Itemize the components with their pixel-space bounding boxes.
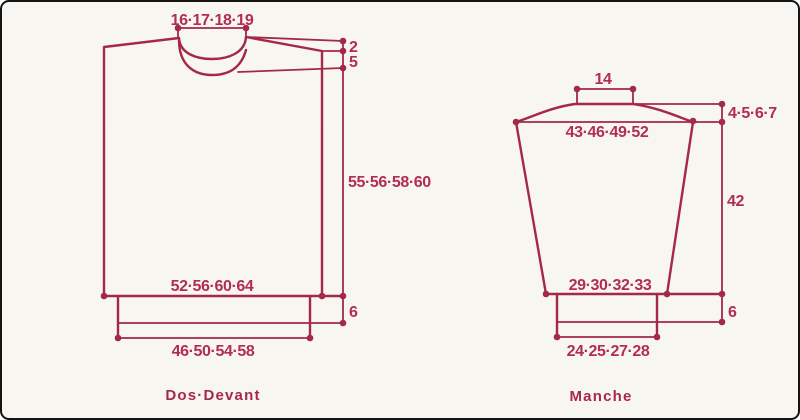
- body-width-label: 52·56·60·64: [171, 278, 254, 295]
- rib-width-label: 46·50·54·58: [172, 343, 255, 360]
- front-neck-depth-label: 5: [349, 54, 358, 71]
- sleeve-cap-outline: [516, 104, 693, 122]
- sleeve-top-width-label: 43·46·49·52: [566, 124, 649, 141]
- cap-top-width-label: 14: [595, 71, 612, 88]
- piece-manche: 14 43·46·49·52 4·5·6·7 42 29·30·32·33 6 …: [513, 71, 778, 405]
- body-length-label: 55·56·58·60: [348, 174, 431, 191]
- sleeve-left-edge: [516, 122, 546, 294]
- schematic-diagram: 16·17·18·19 2 5 55·56·58·60 52·56·60·64 …: [2, 2, 798, 418]
- neck-width-label: 16·17·18·19: [171, 12, 254, 29]
- back-neck-curve: [179, 37, 246, 59]
- sleeve-right-edge: [667, 122, 693, 294]
- piece-label-manche: Manche: [569, 388, 632, 405]
- neck-dim-line: [178, 28, 246, 37]
- cap-top-dim-line: [577, 89, 633, 103]
- cap-height-label: 4·5·6·7: [728, 105, 777, 122]
- front-neck-curve: [179, 40, 246, 75]
- sleeve-length-label: 42: [727, 193, 744, 210]
- sleeve-bottom-width-label: 29·30·32·33: [569, 277, 652, 294]
- piece-label-dos-devant: Dos·Devant: [165, 387, 260, 404]
- cuff-width-label: 24·25·27·28: [567, 343, 650, 360]
- piece-dos-devant: 16·17·18·19 2 5 55·56·58·60 52·56·60·64 …: [101, 12, 432, 404]
- front-neck-ext-line: [238, 68, 343, 72]
- cuff-height-label: 6: [728, 304, 737, 321]
- pattern-schematic-page: 16·17·18·19 2 5 55·56·58·60 52·56·60·64 …: [0, 0, 800, 420]
- rib-height-label: 6: [349, 304, 358, 321]
